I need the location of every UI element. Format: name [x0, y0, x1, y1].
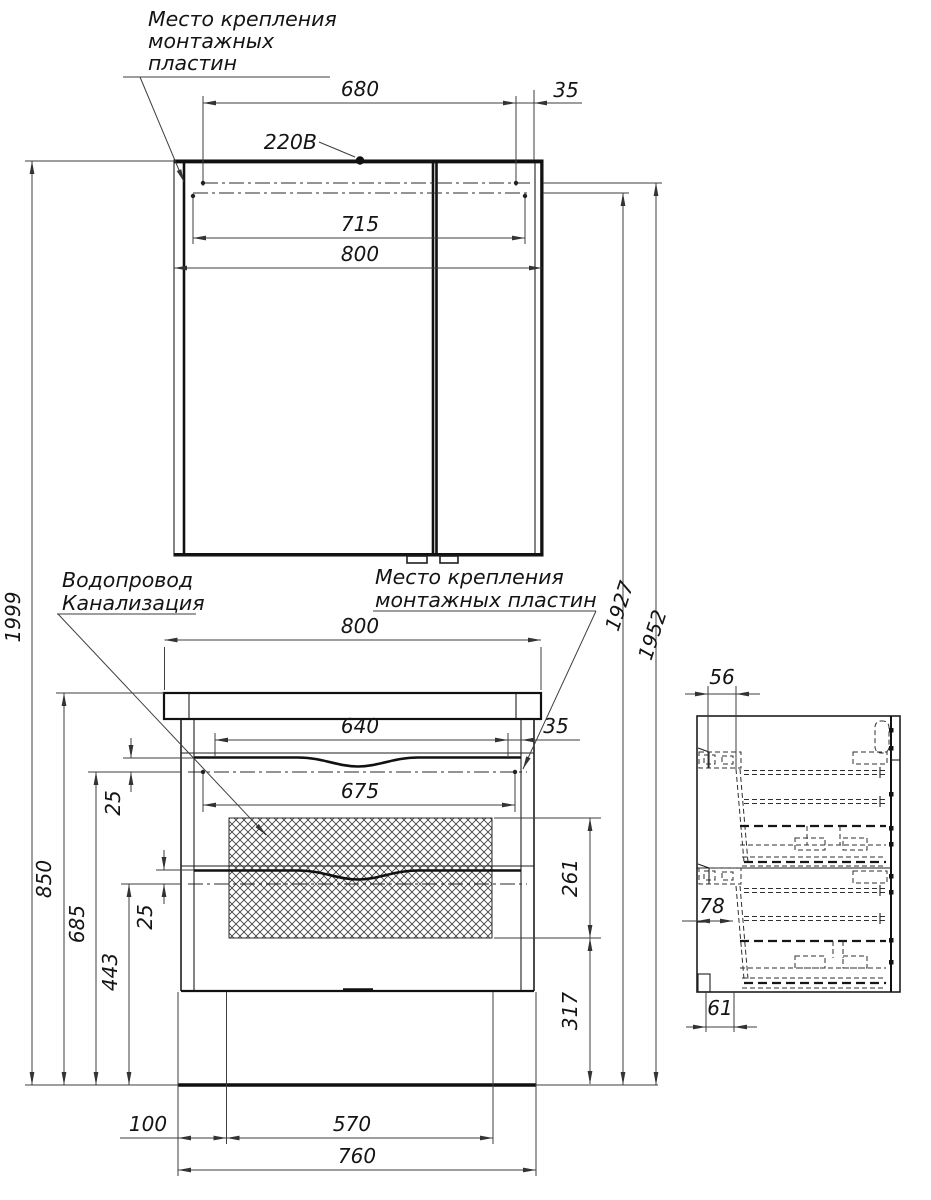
dim-height-1999: 1999: [1, 592, 25, 643]
power-connection-dot: [356, 156, 364, 164]
dim-height-685: 685: [65, 905, 89, 943]
dim-height-1927: 1927: [600, 578, 639, 634]
dim-base-570: 570: [333, 1112, 371, 1136]
dim-hatch-261: 261: [558, 859, 582, 897]
label-line: монтажных: [148, 29, 275, 53]
dim-height-443: 443: [98, 953, 122, 991]
dim-vanity-800: 800: [341, 614, 379, 638]
dim-base-760: 760: [338, 1144, 376, 1168]
dim-offset-25b: 25: [133, 904, 157, 929]
label-power-supply: 220В: [264, 130, 355, 157]
dim-side-78: 78: [699, 894, 724, 918]
label-mounting-plates-vanity: Место крепления монтажных пластин: [373, 565, 597, 769]
dim-height-1952: 1952: [633, 607, 672, 663]
label-plumbing: Водопровод Канализация: [57, 568, 266, 835]
leader-line: [140, 77, 184, 182]
dim-side-61: 61: [707, 996, 732, 1020]
label-line: Место крепления: [375, 565, 564, 589]
dim-hatch-317: 317: [558, 992, 582, 1030]
mounting-plate-side-lower: [853, 871, 887, 883]
service-access-hatch: [229, 818, 492, 938]
leader-line: [523, 611, 596, 769]
door-handle-left: [407, 556, 427, 563]
wall-height-dimensions: 1927 1952: [543, 183, 672, 1085]
mirror-dimensions: 680 35 715 800: [174, 77, 582, 268]
dim-mirror-800: 800: [341, 242, 379, 266]
leader-line: [58, 614, 266, 835]
label-line: Место крепления: [148, 7, 337, 31]
label-line: Водопровод: [62, 568, 193, 592]
dim-side-56: 56: [709, 665, 734, 689]
door-handle-right: [440, 556, 458, 563]
label-line: Канализация: [62, 591, 205, 615]
dim-vanity-640: 640: [341, 714, 379, 738]
vanity-side-view: [697, 716, 900, 992]
dim-mirror-35: 35: [553, 78, 578, 102]
mounting-plate-side-upper: [875, 721, 889, 753]
technical-drawing-page: 680 35 715 800 Место крепления монтажных…: [0, 0, 931, 1200]
dim-height-850: 850: [32, 860, 56, 898]
dim-offset-25a: 25: [101, 790, 125, 815]
dim-vanity-675: 675: [341, 779, 379, 803]
label-mounting-plates-top: Место крепления монтажных пластин: [123, 7, 337, 182]
height-dimensions: 1999 850 685 443 25 25: [1, 161, 194, 1085]
drawer1-top-edge: [194, 758, 521, 767]
dim-mirror-680: 680: [341, 77, 379, 101]
label-line: пластин: [148, 51, 237, 75]
dim-mirror-715: 715: [341, 212, 379, 236]
label-line: монтажных пластин: [375, 588, 597, 612]
power-label: 220В: [264, 130, 317, 154]
dim-base-100: 100: [129, 1112, 167, 1136]
installation-drawing: 680 35 715 800 Место крепления монтажных…: [0, 0, 931, 1200]
